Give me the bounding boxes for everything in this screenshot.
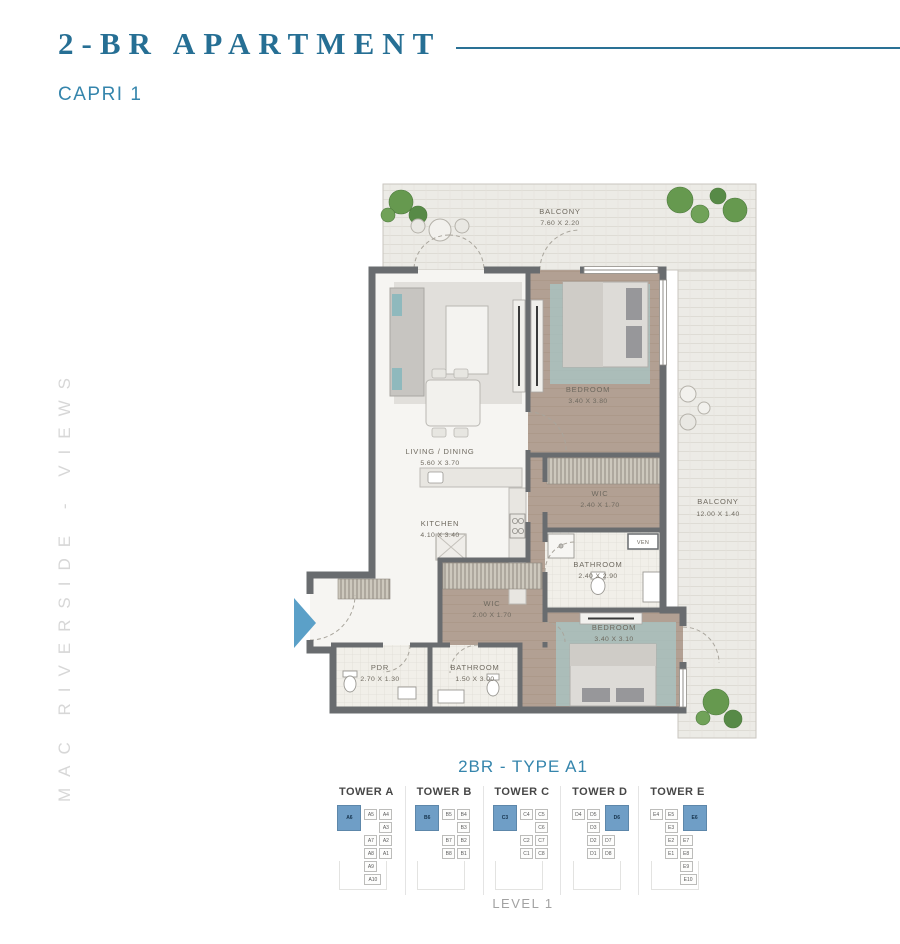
unit-cell: E7	[680, 835, 693, 846]
page-title: 2-BR APARTMENT	[58, 26, 441, 62]
svg-text:2.00 X 1.70: 2.00 X 1.70	[472, 612, 511, 619]
tower-label: TOWER D	[561, 786, 638, 798]
sofa	[390, 288, 424, 396]
tower-unit-grid: C3C4C5C6C2C7C1C8	[491, 803, 553, 891]
unit-cell: C5	[535, 809, 548, 820]
page-subtitle: CAPRI 1	[58, 84, 142, 106]
svg-text:3.40 X 3.10: 3.40 X 3.10	[594, 636, 633, 643]
unit-cell: E5	[665, 809, 678, 820]
level-label: LEVEL 1	[288, 896, 758, 911]
svg-text:5.60 X 3.70: 5.60 X 3.70	[420, 460, 459, 467]
svg-text:2.40 X 1.70: 2.40 X 1.70	[580, 502, 619, 509]
unit-cell: E1	[665, 848, 678, 859]
unit-cell: B3	[457, 822, 470, 833]
svg-text:BEDROOM: BEDROOM	[566, 385, 610, 394]
unit-cell: E9	[680, 861, 693, 872]
tower-label: TOWER C	[484, 786, 561, 798]
unit-cell-highlighted: A6	[337, 805, 361, 831]
unit-cell: D3	[587, 822, 600, 833]
svg-text:BATHROOM: BATHROOM	[573, 560, 622, 569]
svg-text:4.10 X 3.40: 4.10 X 3.40	[420, 532, 459, 539]
unit-cell: A9	[364, 861, 377, 872]
tower-label: TOWER B	[406, 786, 483, 798]
unit-cell: C6	[535, 822, 548, 833]
svg-text:BATHROOM: BATHROOM	[450, 663, 499, 672]
svg-text:WIC: WIC	[484, 599, 501, 608]
side-watermark-text: MAC RIVERSIDE - VIEWS	[36, 235, 94, 935]
title-rule-line	[456, 47, 900, 49]
svg-text:1.50 X 3.00: 1.50 X 3.00	[455, 676, 494, 683]
unit-cell: B2	[457, 835, 470, 846]
tower-label: TOWER E	[639, 786, 716, 798]
unit-cell: D8	[602, 848, 615, 859]
svg-text:WIC: WIC	[592, 489, 609, 498]
unit-cell: C1	[520, 848, 533, 859]
unit-cell: C2	[520, 835, 533, 846]
unit-cell: C4	[520, 809, 533, 820]
unit-cell: E4	[650, 809, 663, 820]
svg-text:BALCONY: BALCONY	[697, 497, 738, 506]
unit-cell: C7	[535, 835, 548, 846]
unit-cell: A10	[364, 874, 381, 885]
unit-cell: D2	[587, 835, 600, 846]
unit-cell: D7	[602, 835, 615, 846]
svg-text:2.70 X 1.30: 2.70 X 1.30	[360, 676, 399, 683]
unit-cell: D5	[587, 809, 600, 820]
unit-cell: D1	[587, 848, 600, 859]
unit-cell: B1	[457, 848, 470, 859]
unit-cell: B5	[442, 809, 455, 820]
bed-2	[570, 644, 656, 706]
unit-cell: E8	[680, 848, 693, 859]
svg-text:LIVING / DINING: LIVING / DINING	[405, 447, 474, 456]
tower-label: TOWER A	[328, 786, 405, 798]
unit-cell: A5	[364, 809, 377, 820]
unit-cell: A4	[379, 809, 392, 820]
side-watermark-label: MAC RIVERSIDE - VIEWS	[55, 367, 75, 802]
unit-cell: B8	[442, 848, 455, 859]
unit-cell: E10	[680, 874, 697, 885]
unit-cell: A3	[379, 822, 392, 833]
unit-cell: B7	[442, 835, 455, 846]
tower-unit-grid: E4E5E6E3E2E7E1E8E9E10	[647, 803, 709, 891]
ven-shaft: VEN	[628, 534, 658, 549]
unit-cell: A1	[379, 848, 392, 859]
svg-text:PDR: PDR	[371, 663, 389, 672]
tower-unit-grid: D4D5D6D3D2D7D1D8	[569, 803, 631, 891]
svg-text:BEDROOM: BEDROOM	[592, 623, 636, 632]
coffee-table	[446, 306, 488, 374]
tower-a: TOWER AA6A5A4A3A7A2A8A1A9A10	[328, 786, 405, 895]
tower-unit-grid: B6B5B4B3B7B2B8B1	[413, 803, 475, 891]
tower-d: TOWER DD4D5D6D3D2D7D1D8	[560, 786, 638, 895]
tower-c: TOWER CC3C4C5C6C2C7C1C8	[483, 786, 561, 895]
unit-type-label: 2BR - TYPE A1	[288, 757, 758, 777]
floor-plan: VEN BALCONY 7.60 X 2.20 BALCONY 12.00 X …	[288, 182, 758, 748]
unit-cell: A8	[364, 848, 377, 859]
tower-unit-grid: A6A5A4A3A7A2A8A1A9A10	[335, 803, 397, 891]
svg-text:VEN: VEN	[637, 540, 649, 546]
svg-text:2.40 X 2.90: 2.40 X 2.90	[578, 573, 617, 580]
svg-text:3.40 X 3.80: 3.40 X 3.80	[568, 398, 607, 405]
tower-b: TOWER BB6B5B4B3B7B2B8B1	[405, 786, 483, 895]
unit-cell: E2	[665, 835, 678, 846]
unit-cell: C8	[535, 848, 548, 859]
wic2-wardrobe	[443, 563, 542, 589]
svg-text:BALCONY: BALCONY	[539, 207, 580, 216]
tower-diagrams: TOWER AA6A5A4A3A7A2A8A1A9A10TOWER BB6B5B…	[328, 786, 716, 895]
svg-text:12.00 X 1.40: 12.00 X 1.40	[696, 511, 739, 518]
unit-cell-highlighted: B6	[415, 805, 439, 831]
unit-cell-highlighted: E6	[683, 805, 707, 831]
entry-closet	[338, 579, 390, 599]
unit-cell: D4	[572, 809, 585, 820]
svg-text:KITCHEN: KITCHEN	[421, 519, 460, 528]
svg-text:7.60 X 2.20: 7.60 X 2.20	[540, 220, 579, 227]
tower-e: TOWER EE4E5E6E3E2E7E1E8E9E10	[638, 786, 716, 895]
wic1-wardrobe	[547, 458, 661, 484]
unit-cell-highlighted: D6	[605, 805, 629, 831]
unit-cell: B4	[457, 809, 470, 820]
unit-cell: E3	[665, 822, 678, 833]
bed-1	[563, 282, 648, 367]
unit-cell: A7	[364, 835, 377, 846]
unit-cell: A2	[379, 835, 392, 846]
unit-cell-highlighted: C3	[493, 805, 517, 831]
